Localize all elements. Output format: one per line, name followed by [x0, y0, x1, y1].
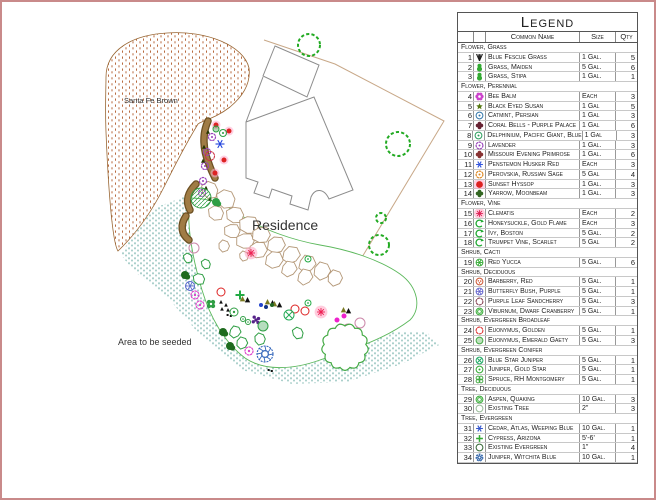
legend-header-common-name: Common Name: [486, 32, 580, 42]
plant-symbol-icon: [474, 424, 486, 433]
plant-symbol-icon: [474, 375, 486, 384]
plant-symbol-icon: [474, 336, 486, 345]
legend-item-name: Yarrow, Moonbeam: [486, 189, 580, 198]
legend-item-row: 14Yarrow, Moonbeam1 Gal.3: [458, 189, 637, 199]
legend-item-name: Aspen, Quaking: [486, 395, 580, 404]
legend-item-qty: 2: [616, 238, 637, 247]
legend-item-row: 34Juniper, Witchita Blue10 Gal.1: [458, 453, 637, 463]
plant-symbol-reddot: [211, 169, 220, 178]
legend-item-name: Euonymus, Golden: [486, 326, 580, 335]
plant-symbol-icon: [474, 141, 486, 150]
plant-symbol-icon: [474, 297, 486, 306]
residence-label: Residence: [252, 217, 318, 233]
legend-item-qty: 5: [616, 102, 637, 111]
legend-item-name: Purple Leaf Sandcherry: [486, 297, 580, 306]
legend-item-row: 10Missouri Evening Primrose1 Gal.6: [458, 150, 637, 160]
legend-item-qty: 3: [617, 131, 637, 140]
legend-item-row: 23Viburnum, Dwarf Cranberry5 Gal.1: [458, 307, 637, 317]
garage-outline: [263, 46, 319, 97]
legend-item-number: 17: [458, 229, 474, 238]
plant-symbol-icon: [474, 365, 486, 374]
legend-item-row: 22Purple Leaf Sandcherry5 Gal.3: [458, 297, 637, 307]
legend-item-row: 20Barberry, Red5 Gal.1: [458, 277, 637, 287]
legend-item-number: 3: [458, 72, 474, 81]
legend-item-qty: 3: [616, 111, 637, 120]
plant-symbol-icon: [474, 121, 486, 130]
legend-item-number: 15: [458, 209, 474, 218]
landscape-plan-canvas: Santa Fe Brown Residence Area to be seed…: [0, 0, 656, 500]
legend-item-row: 18Trumpet Vine, Scarlet5 Gal2: [458, 238, 637, 248]
legend-item-qty: 1: [616, 375, 637, 384]
legend-category-row: Shrub, Cacti: [458, 248, 637, 258]
legend-item-name: Red Yucca: [486, 258, 580, 267]
legend-item-size: 5 Gal.: [580, 356, 616, 365]
plant-symbol-icon: [474, 72, 486, 81]
legend-item-size: 1": [580, 443, 616, 452]
legend-item-row: 8Delphinium, Pacific Giant, Blue1 Gal3: [458, 131, 637, 141]
legend-item-number: 18: [458, 238, 474, 247]
legend-item-size: 10 Gal.: [580, 395, 616, 404]
legend-item-qty: 3: [616, 180, 637, 189]
legend-item-qty: 6: [616, 150, 637, 159]
legend-item-number: 31: [458, 424, 474, 433]
legend-item-number: 24: [458, 326, 474, 335]
plant-symbol-dot: [342, 314, 347, 319]
legend-item-number: 7: [458, 121, 474, 130]
legend-item-size: 5 Gal.: [580, 229, 616, 238]
plant-symbol-poly: [193, 274, 204, 285]
plant-symbol-hatch-circle: [191, 188, 211, 208]
plant-symbol-icon: [474, 229, 486, 238]
legend-item-name: Missouri Evening Primrose: [486, 150, 580, 159]
legend-item-row: 16Honeysuckle, Gold FlameEach3: [458, 219, 637, 229]
legend-item-size: Each: [580, 209, 616, 218]
legend-item-row: 25Euonymus, Emerald Gaety5 Gal.3: [458, 336, 637, 346]
legend-body: Flower, Grass1Blue Fescue Grass1 Gal.52G…: [458, 43, 637, 463]
legend-item-qty: 3: [616, 92, 637, 101]
legend-item-name: Existing Evergreen: [486, 443, 580, 452]
legend-item-number: 9: [458, 141, 474, 150]
legend-item-size: 5'-6': [580, 434, 616, 443]
legend-header-number-cell: [458, 32, 474, 42]
legend-item-row: 19Red Yucca5 Gal.6: [458, 258, 637, 268]
legend-item-size: 5 Gal.: [580, 258, 616, 267]
legend-category-row: Tree, Evergreen: [458, 414, 637, 424]
legend-item-row: 3Grass, Stipa1 Gal.1: [458, 72, 637, 82]
plant-symbol-icon: [474, 395, 486, 404]
legend-item-number: 13: [458, 180, 474, 189]
legend-item-number: 32: [458, 434, 474, 443]
plant-symbol-icon: [474, 326, 486, 335]
legend-item-size: Each: [580, 160, 616, 169]
legend-item-row: 32Cypress, Arizona5'-6'1: [458, 434, 637, 444]
legend-item-number: 19: [458, 258, 474, 267]
legend-item-name: Ivy, Boston: [486, 229, 580, 238]
legend-item-size: 1 Gal.: [580, 180, 616, 189]
legend-item-qty: 3: [616, 141, 637, 150]
legend-item-row: 28Spruce, RH Montgomery5 Gal.1: [458, 375, 637, 385]
legend-item-name: Honeysuckle, Gold Flame: [486, 219, 580, 228]
legend-item-name: Bee Balm: [486, 92, 580, 101]
legend-item-number: 4: [458, 92, 474, 101]
legend-item-qty: 6: [616, 258, 637, 267]
legend-item-number: 26: [458, 356, 474, 365]
legend-header-qty: Qty: [616, 32, 637, 42]
legend-item-name: Delphinium, Pacific Giant, Blue: [485, 131, 582, 140]
legend-item-qty: 3: [616, 189, 637, 198]
legend-category-row: Tree, Deciduous: [458, 385, 637, 395]
plant-symbol-icon: [474, 277, 486, 286]
plant-symbol-icon: [474, 92, 486, 101]
legend-table: Legend Common Name Size Qty Flower, Gras…: [457, 12, 638, 464]
legend-item-row: 17Ivy, Boston5 Gal.2: [458, 229, 637, 239]
legend-item-number: 20: [458, 277, 474, 286]
legend-item-row: 33Existing Evergreen1"4: [458, 443, 637, 453]
plant-symbol-icon: [474, 453, 486, 462]
legend-item-name: Viburnum, Dwarf Cranberry: [486, 307, 580, 316]
legend-item-number: 11: [458, 160, 474, 169]
legend-item-row: 13Sunset Hyssop1 Gal.3: [458, 180, 637, 190]
legend-item-qty: 3: [616, 336, 637, 345]
legend-item-size: 5 Gal.: [580, 326, 616, 335]
plant-symbol-tree-dashed: [369, 235, 389, 255]
legend-item-number: 16: [458, 219, 474, 228]
legend-item-qty: 3: [616, 404, 637, 413]
legend-item-number: 34: [458, 453, 474, 462]
legend-item-row: 30Existing Tree2"3: [458, 404, 637, 414]
plant-symbol-gear: [200, 178, 207, 185]
legend-item-qty: 1: [616, 424, 637, 433]
legend-item-row: 11Penstemon Husker RedEach3: [458, 160, 637, 170]
legend-item-size: 5 Gal.: [580, 63, 616, 72]
legend-item-size: 1 Gal.: [580, 189, 616, 198]
legend-item-number: 25: [458, 336, 474, 345]
plant-symbol-dot: [335, 318, 340, 323]
legend-item-name: Penstemon Husker Red: [486, 160, 580, 169]
legend-item-size: 5 Gal.: [580, 307, 616, 316]
legend-item-name: Juniper, Gold Star: [486, 365, 580, 374]
legend-item-size: 1 Gal.: [580, 141, 616, 150]
legend-item-size: 5 Gal.: [580, 375, 616, 384]
legend-item-name: Spruce, RH Montgomery: [486, 375, 580, 384]
legend-item-size: 1 Gal.: [580, 72, 616, 81]
legend-item-qty: 3: [616, 219, 637, 228]
house-wall-line: [246, 77, 263, 122]
legend-item-qty: 1: [616, 453, 637, 462]
plant-symbol-tree-dashed: [376, 213, 386, 223]
legend-item-qty: 1: [616, 356, 637, 365]
plant-symbol-flower4: [207, 300, 215, 308]
legend-item-row: 15ClematisEach2: [458, 209, 637, 219]
legend-item-row: 4Bee BalmEach3: [458, 92, 637, 102]
legend-item-size: 5 Gal.: [580, 277, 616, 286]
legend-item-size: 5 Gal.: [580, 365, 616, 374]
legend-item-size: 5 Gal: [580, 170, 616, 179]
legend-item-name: Perovskia, Russian Sage: [486, 170, 580, 179]
legend-item-row: 1Blue Fescue Grass1 Gal.5: [458, 53, 637, 63]
legend-item-number: 22: [458, 297, 474, 306]
legend-item-qty: 4: [616, 170, 637, 179]
legend-item-name: Blue Fescue Grass: [486, 53, 580, 62]
legend-item-size: 1 Gal: [580, 111, 616, 120]
legend-item-size: 5 Gal.: [580, 287, 616, 296]
legend-item-size: 1 Gal: [580, 102, 616, 111]
legend-item-number: 28: [458, 375, 474, 384]
legend-item-name: Cedar, Atlas, Weeping Blue: [486, 424, 580, 433]
legend-item-qty: 5: [616, 53, 637, 62]
plant-symbol-dot: [264, 305, 268, 309]
legend-item-name: Existing Tree: [486, 404, 580, 413]
legend-item-name: Barberry, Red: [486, 277, 580, 286]
plant-symbol-icon: [474, 150, 486, 159]
legend-item-qty: 1: [616, 434, 637, 443]
legend-item-number: 8: [458, 131, 473, 140]
plant-symbol-icon: [474, 307, 486, 316]
legend-item-qty: 2: [616, 229, 637, 238]
legend-item-row: 29Aspen, Quaking10 Gal.3: [458, 395, 637, 405]
legend-item-row: 5Black Eyed Susan1 Gal5: [458, 102, 637, 112]
plant-symbol-tree-dashed: [386, 132, 410, 156]
legend-item-name: Trumpet Vine, Scarlet: [486, 238, 580, 247]
plant-symbol-icon: [474, 170, 486, 179]
residence-buildings: [246, 46, 353, 210]
legend-item-size: 5 Gal.: [580, 297, 616, 306]
legend-item-number: 33: [458, 443, 474, 452]
area-to-be-seeded-label: Area to be seeded: [118, 337, 192, 347]
legend-item-qty: 1: [616, 307, 637, 316]
legend-item-number: 30: [458, 404, 474, 413]
legend-category-row: Flower, Perennial: [458, 82, 637, 92]
legend-item-row: 24Euonymus, Golden5 Gal.1: [458, 326, 637, 336]
legend-item-name: Black Eyed Susan: [486, 102, 580, 111]
legend-item-number: 29: [458, 395, 474, 404]
santa-fe-brown-label: Santa Fe Brown: [124, 96, 178, 105]
plant-symbol-starburst: [245, 247, 258, 260]
plant-symbol-circle-fill: [213, 126, 219, 132]
legend-item-name: Juniper, Witchita Blue: [486, 453, 580, 462]
legend-item-name: Grass, Maiden: [486, 63, 580, 72]
legend-item-size: 1 Gal: [583, 131, 617, 140]
legend-item-qty: 3: [616, 395, 637, 404]
legend-item-number: 10: [458, 150, 474, 159]
legend-item-name: Clematis: [486, 209, 580, 218]
legend-item-number: 21: [458, 287, 474, 296]
legend-item-row: 7Coral Bells - Purple Palace1 Gal6: [458, 121, 637, 131]
plant-symbol-icon: [474, 209, 486, 218]
legend-category-row: Shrub, Evergreen Broadleaf: [458, 316, 637, 326]
legend-item-row: 26Blue Star Juniper5 Gal.1: [458, 356, 637, 366]
plant-symbol-icon: [474, 111, 486, 120]
legend-item-qty: 6: [616, 63, 637, 72]
plant-symbol-icon: [474, 180, 486, 189]
legend-item-qty: 3: [616, 160, 637, 169]
legend-item-row: 2Grass, Maiden5 Gal.6: [458, 63, 637, 73]
legend-item-row: 9Lavender1 Gal.3: [458, 141, 637, 151]
legend-item-size: 1 Gal: [580, 121, 616, 130]
legend-item-size: 1 Gal.: [580, 53, 616, 62]
flagstone: [219, 240, 230, 252]
legend-header-size: Size: [580, 32, 616, 42]
legend-item-row: 31Cedar, Atlas, Weeping Blue10 Gal.1: [458, 424, 637, 434]
plant-symbol-reddot: [220, 156, 229, 165]
legend-item-row: 6Catmint, Persian1 Gal3: [458, 111, 637, 121]
legend-item-qty: 2: [616, 209, 637, 218]
legend-category-row: Shrub, Evergreen Conifer: [458, 346, 637, 356]
legend-item-number: 12: [458, 170, 474, 179]
legend-header-symbol-cell: [474, 32, 486, 42]
legend-item-number: 5: [458, 102, 474, 111]
legend-item-qty: 1: [616, 277, 637, 286]
legend-item-qty: 1: [616, 365, 637, 374]
legend-title: Legend: [458, 13, 637, 32]
legend-item-number: 27: [458, 365, 474, 374]
legend-item-number: 6: [458, 111, 474, 120]
plant-symbol-icon: [474, 258, 486, 267]
plant-symbol-icon: [474, 189, 486, 198]
plant-symbol-icon: [474, 102, 486, 111]
legend-item-size: 1 Gal.: [580, 150, 616, 159]
plant-symbol-circle-fill: [258, 321, 268, 331]
legend-item-size: 10 Gal.: [580, 424, 616, 433]
plant-symbol-dot: [259, 303, 263, 307]
legend-item-number: 23: [458, 307, 474, 316]
legend-item-row: 21Butterfly Bush, Purple5 Gal.1: [458, 287, 637, 297]
plant-symbol-icon: [474, 238, 486, 247]
flagstone: [225, 225, 241, 238]
legend-item-qty: 1: [616, 287, 637, 296]
legend-item-name: Euonymus, Emerald Gaety: [486, 336, 580, 345]
legend-item-name: Grass, Stipa: [486, 72, 580, 81]
plant-symbol-icon: [474, 160, 486, 169]
legend-category-row: Shrub, Deciduous: [458, 268, 637, 278]
plant-symbol-icon: [474, 287, 486, 296]
plant-symbol-dot: [270, 303, 274, 307]
legend-item-size: Each: [580, 92, 616, 101]
plant-symbol-icon: [474, 443, 486, 452]
legend-item-name: Lavender: [486, 141, 580, 150]
plant-symbol-snowflake: [216, 140, 225, 148]
legend-item-row: 12Perovskia, Russian Sage5 Gal4: [458, 170, 637, 180]
legend-header-row: Common Name Size Qty: [458, 32, 637, 43]
plant-symbol-gear: [209, 134, 216, 141]
legend-item-number: 14: [458, 189, 474, 198]
plant-symbol-starburst: [315, 306, 328, 319]
legend-item-size: 5 Gal.: [580, 336, 616, 345]
plant-symbol-icon: [474, 434, 486, 443]
house-outline: [246, 97, 353, 210]
legend-item-size: 5 Gal: [580, 238, 616, 247]
legend-item-size: 2": [580, 404, 616, 413]
plant-symbol-icon: [474, 63, 486, 72]
plant-symbol-icon: [474, 219, 486, 228]
legend-item-row: 27Juniper, Gold Star5 Gal.1: [458, 365, 637, 375]
plant-symbol-icon: [474, 53, 486, 62]
legend-item-qty: 4: [616, 443, 637, 452]
legend-item-name: Butterfly Bush, Purple: [486, 287, 580, 296]
legend-item-size: Each: [580, 219, 616, 228]
legend-item-name: Coral Bells - Purple Palace: [486, 121, 580, 130]
legend-item-size: 10 Gal.: [580, 453, 616, 462]
legend-item-number: 1: [458, 53, 474, 62]
plant-symbol-icon: [473, 131, 485, 140]
legend-item-name: Catmint, Persian: [486, 111, 580, 120]
legend-category-row: Flower, Vine: [458, 199, 637, 209]
legend-category-row: Flower, Grass: [458, 43, 637, 53]
legend-item-qty: 1: [616, 326, 637, 335]
plant-symbol-poly: [255, 333, 265, 345]
plant-symbol-icon: [474, 404, 486, 413]
legend-item-qty: 1: [616, 72, 637, 81]
legend-item-name: Cypress, Arizona: [486, 434, 580, 443]
legend-item-qty: 6: [616, 121, 637, 130]
legend-item-name: Sunset Hyssop: [486, 180, 580, 189]
legend-item-number: 2: [458, 63, 474, 72]
legend-item-name: Blue Star Juniper: [486, 356, 580, 365]
plant-symbol-icon: [474, 356, 486, 365]
legend-item-qty: 3: [616, 297, 637, 306]
